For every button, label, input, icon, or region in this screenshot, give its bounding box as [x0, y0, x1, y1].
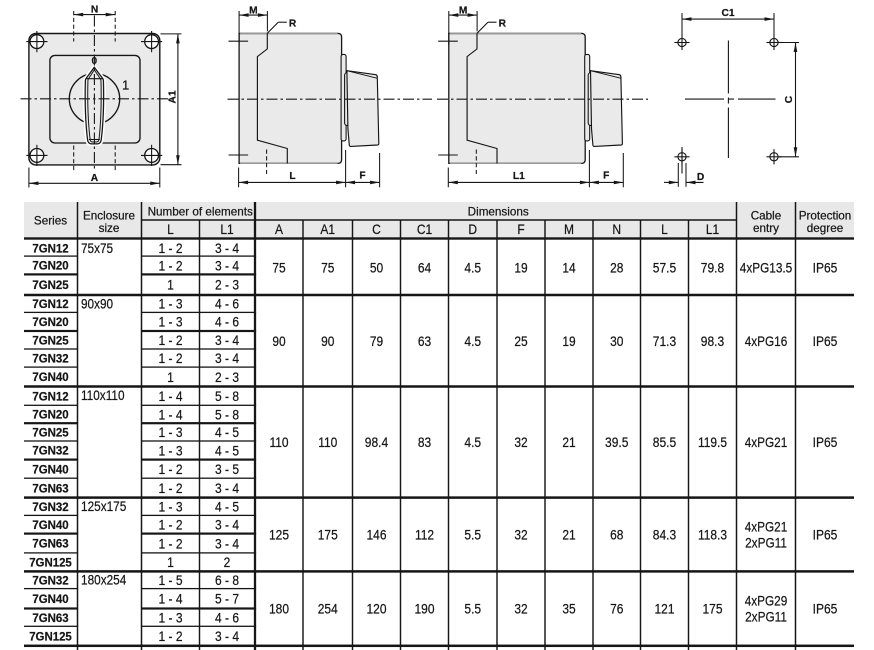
- svg-text:size: size: [99, 222, 120, 235]
- svg-text:3 - 4: 3 - 4: [215, 517, 239, 533]
- svg-text:1 - 4: 1 - 4: [159, 388, 183, 404]
- svg-text:4 - 5: 4 - 5: [215, 499, 239, 515]
- svg-text:2: 2: [224, 554, 231, 570]
- svg-text:110: 110: [318, 434, 337, 450]
- svg-text:21: 21: [562, 434, 576, 450]
- svg-text:7GN32: 7GN32: [32, 351, 69, 365]
- svg-text:Series: Series: [34, 215, 67, 228]
- svg-text:D: D: [468, 221, 477, 237]
- svg-text:1 - 2: 1 - 2: [159, 461, 183, 477]
- svg-text:254: 254: [318, 601, 338, 617]
- svg-text:90: 90: [321, 333, 335, 349]
- svg-text:3 - 4: 3 - 4: [215, 257, 239, 273]
- svg-text:IP65: IP65: [813, 434, 838, 450]
- svg-text:2 - 3: 2 - 3: [215, 369, 239, 385]
- svg-text:121: 121: [655, 601, 675, 617]
- svg-text:76: 76: [610, 601, 624, 617]
- svg-text:120: 120: [367, 601, 387, 617]
- svg-text:4 - 6: 4 - 6: [215, 296, 239, 312]
- svg-text:7GN32: 7GN32: [32, 573, 69, 587]
- svg-text:7GN63: 7GN63: [32, 481, 69, 495]
- svg-text:A: A: [275, 221, 284, 237]
- svg-text:146: 146: [367, 527, 387, 543]
- svg-text:1 - 3: 1 - 3: [159, 499, 183, 515]
- svg-text:79.8: 79.8: [701, 259, 725, 275]
- svg-text:A: A: [91, 173, 99, 184]
- svg-text:L: L: [289, 171, 295, 182]
- svg-text:98.3: 98.3: [701, 333, 725, 349]
- svg-text:1 - 2: 1 - 2: [159, 517, 183, 533]
- svg-text:1 - 3: 1 - 3: [159, 424, 183, 440]
- svg-text:39.5: 39.5: [605, 434, 629, 450]
- svg-text:1: 1: [167, 554, 174, 570]
- svg-text:L1: L1: [220, 221, 234, 237]
- svg-text:25: 25: [514, 333, 528, 349]
- svg-text:F: F: [517, 221, 524, 237]
- svg-text:175: 175: [703, 601, 723, 617]
- svg-text:4xPG16: 4xPG16: [745, 333, 788, 349]
- svg-text:83: 83: [418, 434, 432, 450]
- svg-text:32: 32: [514, 434, 528, 450]
- svg-text:L: L: [661, 221, 668, 237]
- svg-text:IP65: IP65: [813, 601, 838, 617]
- svg-text:D: D: [697, 172, 704, 183]
- svg-text:7GN32: 7GN32: [32, 500, 69, 514]
- svg-text:125x175: 125x175: [81, 499, 126, 514]
- svg-text:64: 64: [418, 259, 432, 275]
- svg-text:1 - 5: 1 - 5: [159, 572, 183, 588]
- svg-text:1: 1: [122, 78, 129, 93]
- svg-text:1 - 4: 1 - 4: [159, 406, 183, 422]
- svg-text:M: M: [459, 5, 468, 16]
- svg-text:Cable: Cable: [751, 209, 782, 222]
- svg-text:A1: A1: [320, 221, 335, 237]
- svg-text:84.3: 84.3: [653, 527, 677, 543]
- svg-text:7GN40: 7GN40: [32, 462, 69, 476]
- svg-text:7GN12: 7GN12: [32, 297, 69, 311]
- svg-text:90x90: 90x90: [81, 296, 113, 311]
- svg-text:degree: degree: [807, 222, 843, 235]
- svg-text:1 - 3: 1 - 3: [159, 442, 183, 458]
- svg-text:7GN25: 7GN25: [32, 426, 69, 440]
- svg-text:7GN20: 7GN20: [32, 259, 69, 273]
- svg-text:A1: A1: [167, 90, 178, 103]
- svg-text:N: N: [612, 221, 621, 237]
- svg-text:N: N: [91, 4, 98, 15]
- svg-text:32: 32: [514, 601, 528, 617]
- svg-text:7GN63: 7GN63: [32, 537, 69, 551]
- svg-text:19: 19: [514, 259, 528, 275]
- svg-text:7GN40: 7GN40: [32, 518, 69, 532]
- svg-text:3 - 5: 3 - 5: [215, 461, 239, 477]
- svg-text:1 - 3: 1 - 3: [159, 609, 183, 625]
- svg-text:4.5: 4.5: [464, 434, 481, 450]
- svg-text:IP65: IP65: [813, 527, 838, 543]
- svg-text:C1: C1: [721, 8, 734, 19]
- svg-text:4.5: 4.5: [464, 259, 481, 275]
- svg-text:Dimensions: Dimensions: [468, 206, 529, 219]
- svg-text:0: 0: [91, 55, 97, 67]
- svg-text:50: 50: [370, 259, 384, 275]
- svg-text:1 - 4: 1 - 4: [159, 591, 183, 607]
- svg-text:7GN25: 7GN25: [32, 278, 69, 292]
- svg-text:4.5: 4.5: [464, 333, 481, 349]
- svg-text:5.5: 5.5: [464, 601, 481, 617]
- svg-text:2xPG11: 2xPG11: [745, 535, 787, 551]
- svg-text:28: 28: [610, 259, 624, 275]
- svg-text:M: M: [564, 221, 574, 237]
- svg-text:C1: C1: [417, 221, 433, 237]
- svg-text:7GN125: 7GN125: [29, 556, 72, 570]
- svg-text:R: R: [499, 18, 507, 29]
- svg-text:112: 112: [415, 527, 434, 543]
- svg-text:7GN12: 7GN12: [32, 389, 69, 403]
- svg-text:30: 30: [610, 333, 624, 349]
- svg-text:180x254: 180x254: [81, 573, 127, 588]
- svg-text:IP65: IP65: [813, 259, 838, 275]
- svg-text:1 - 2: 1 - 2: [159, 480, 183, 496]
- svg-text:IP65: IP65: [813, 333, 838, 349]
- svg-text:1 - 2: 1 - 2: [159, 257, 183, 273]
- svg-text:7GN32: 7GN32: [32, 444, 69, 458]
- svg-text:4 - 5: 4 - 5: [215, 442, 239, 458]
- svg-text:4 - 5: 4 - 5: [215, 424, 239, 440]
- svg-text:5 - 8: 5 - 8: [215, 406, 239, 422]
- svg-text:Protection: Protection: [799, 209, 852, 222]
- svg-text:4xPG13.5: 4xPG13.5: [740, 259, 793, 275]
- svg-text:F: F: [359, 170, 365, 181]
- svg-text:Number of elements: Number of elements: [148, 206, 253, 219]
- svg-text:71.3: 71.3: [653, 333, 677, 349]
- svg-text:125: 125: [269, 527, 289, 543]
- svg-text:5 - 8: 5 - 8: [215, 388, 239, 404]
- svg-text:7GN40: 7GN40: [32, 592, 69, 606]
- svg-text:190: 190: [415, 601, 435, 617]
- svg-text:1: 1: [167, 369, 174, 385]
- svg-text:C: C: [784, 95, 795, 103]
- svg-text:85.5: 85.5: [653, 434, 677, 450]
- svg-text:57.5: 57.5: [653, 259, 677, 275]
- svg-text:R: R: [289, 18, 297, 29]
- svg-text:63: 63: [418, 333, 432, 349]
- svg-text:2xPG11: 2xPG11: [745, 609, 787, 625]
- svg-text:4xPG21: 4xPG21: [745, 519, 788, 535]
- svg-text:7GN20: 7GN20: [32, 408, 69, 422]
- svg-text:75x75: 75x75: [81, 241, 113, 256]
- svg-text:1 - 2: 1 - 2: [159, 240, 183, 256]
- svg-text:5.5: 5.5: [464, 527, 481, 543]
- svg-text:1 - 2: 1 - 2: [159, 535, 183, 551]
- svg-text:7GN20: 7GN20: [32, 315, 69, 329]
- svg-text:3 - 4: 3 - 4: [215, 350, 239, 366]
- svg-text:79: 79: [370, 333, 384, 349]
- svg-text:C: C: [372, 221, 381, 237]
- svg-text:3 - 4: 3 - 4: [215, 535, 239, 551]
- svg-text:7GN40: 7GN40: [32, 370, 69, 384]
- svg-text:F: F: [603, 170, 609, 181]
- svg-text:1: 1: [167, 277, 174, 293]
- svg-text:75: 75: [272, 259, 286, 275]
- svg-text:1 - 2: 1 - 2: [159, 628, 183, 644]
- svg-text:7GN25: 7GN25: [32, 333, 69, 347]
- svg-text:M: M: [249, 5, 258, 16]
- svg-text:Enclosure: Enclosure: [83, 209, 135, 222]
- svg-text:3 - 4: 3 - 4: [215, 332, 239, 348]
- svg-text:14: 14: [562, 259, 576, 275]
- svg-text:5 - 7: 5 - 7: [215, 591, 239, 607]
- svg-text:90: 90: [272, 333, 286, 349]
- svg-text:7GN125: 7GN125: [29, 629, 72, 643]
- svg-text:3 - 4: 3 - 4: [215, 628, 239, 644]
- svg-text:L1: L1: [706, 221, 720, 237]
- svg-text:118.3: 118.3: [698, 527, 727, 543]
- svg-text:4 - 6: 4 - 6: [215, 314, 239, 330]
- svg-text:4 - 6: 4 - 6: [215, 609, 239, 625]
- svg-text:3 - 4: 3 - 4: [215, 240, 239, 256]
- svg-text:1 - 3: 1 - 3: [159, 314, 183, 330]
- svg-text:180: 180: [269, 601, 289, 617]
- svg-text:3 - 4: 3 - 4: [215, 480, 239, 496]
- svg-text:110x110: 110x110: [81, 388, 125, 403]
- svg-text:119.5: 119.5: [698, 434, 727, 450]
- svg-text:32: 32: [514, 527, 528, 543]
- svg-text:1 - 3: 1 - 3: [159, 296, 183, 312]
- svg-text:21: 21: [562, 527, 576, 543]
- svg-text:4xPG29: 4xPG29: [745, 593, 788, 609]
- svg-text:1 - 2: 1 - 2: [159, 332, 183, 348]
- svg-text:6 - 8: 6 - 8: [215, 572, 239, 588]
- svg-text:L: L: [167, 221, 174, 237]
- svg-text:68: 68: [610, 527, 624, 543]
- svg-text:7GN12: 7GN12: [32, 241, 69, 255]
- svg-text:19: 19: [562, 333, 576, 349]
- svg-text:2 - 3: 2 - 3: [215, 277, 239, 293]
- svg-text:1 - 2: 1 - 2: [159, 350, 183, 366]
- svg-text:4xPG21: 4xPG21: [745, 434, 788, 450]
- svg-text:175: 175: [318, 527, 338, 543]
- svg-text:35: 35: [562, 601, 576, 617]
- svg-text:entry: entry: [753, 222, 779, 235]
- svg-text:L1: L1: [513, 171, 525, 182]
- svg-text:7GN63: 7GN63: [32, 611, 69, 625]
- svg-text:75: 75: [321, 259, 335, 275]
- svg-text:110: 110: [269, 434, 288, 450]
- svg-text:98.4: 98.4: [365, 434, 389, 450]
